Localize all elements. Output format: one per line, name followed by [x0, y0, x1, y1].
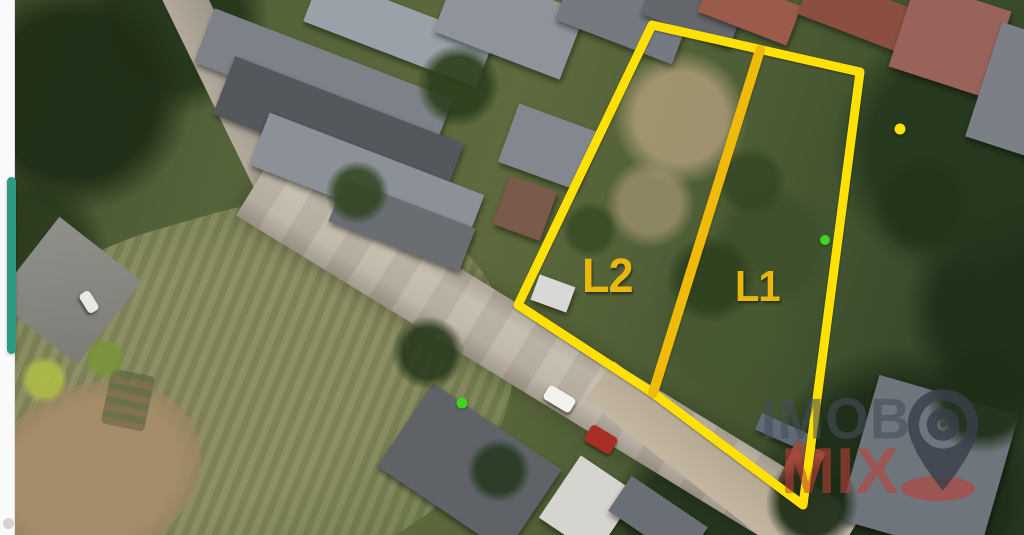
- lot-label-l1: L1: [735, 265, 780, 308]
- scrollbar-thumb[interactable]: [7, 177, 16, 354]
- location-pin-icon: [899, 386, 987, 494]
- listing-image-viewport: L2 L1 IMOB MIX: [0, 0, 1024, 535]
- gutter-dot: [3, 518, 14, 529]
- watermark-text-mix: MIX: [781, 438, 900, 503]
- lot-label-l2: L2: [582, 251, 633, 300]
